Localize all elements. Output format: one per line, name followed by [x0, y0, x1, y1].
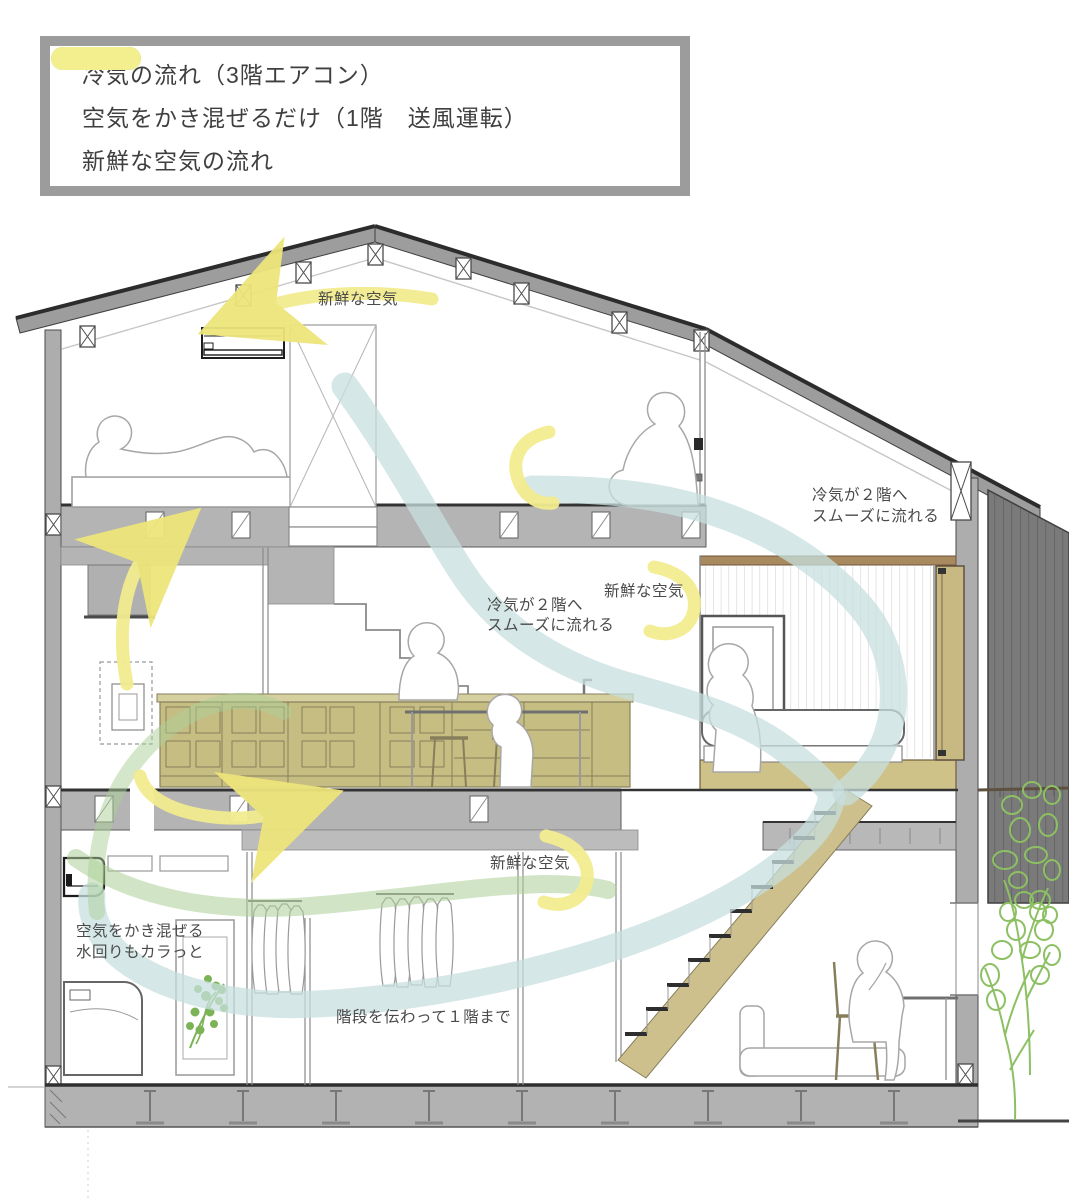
legend-item-cold: 冷気の流れ（3階エアコン）: [82, 56, 670, 90]
legend-swatch-fresh-icon: [50, 46, 142, 71]
foundation: [8, 1085, 1069, 1198]
label-via-stairs: 階段を伝わって１階まで: [336, 1008, 511, 1026]
label-mix-air-1: 空気をかき混ぜる: [76, 922, 204, 940]
diagram-stage: 新鮮な空気 冷気が２階へ スムーズに流れる 新鮮な空気 冷気が２階へ スムーズに…: [0, 0, 1069, 1200]
label-fresh-air-top: 新鮮な空気: [318, 290, 398, 308]
air-flow-section-diagram: { "legend": { "items": [ {"label": "冷気の流…: [0, 0, 1069, 1200]
bed-platform-3f: [72, 477, 322, 507]
legend-item-mix: 空気をかき混ぜるだけ（1階 送風運転）: [82, 99, 670, 133]
label-fresh-air-1f: 新鮮な空気: [490, 854, 570, 872]
transom-windows-1f: [108, 856, 228, 871]
ac-unit-3f: [202, 328, 284, 358]
wall-switch: [694, 438, 703, 450]
label-cold-to-2f-right-1: 冷気が２階へ: [812, 486, 908, 504]
legend-item-fresh: 新鮮な空気の流れ: [82, 142, 670, 176]
tree-right: [981, 892, 1060, 1120]
legend-label-mix: 空気をかき混ぜるだけ（1階 送風運転）: [82, 99, 528, 133]
washing-machine: [64, 982, 142, 1075]
fresh-air-arc-2f: [650, 567, 694, 634]
label-fresh-air-2f: 新鮮な空気: [604, 582, 684, 600]
label-cold-to-2f-left-1: 冷気が２階へ: [487, 596, 583, 614]
legend-label-fresh: 新鮮な空気の流れ: [82, 142, 274, 176]
person-standing-kitchen: [399, 623, 458, 700]
label-cold-to-2f-right-2: スムーズに流れる: [812, 507, 939, 525]
right-wall-brace: [951, 462, 971, 520]
label-cold-to-2f-left-2: スムーズに流れる: [487, 616, 614, 634]
bedroom-floor: [621, 760, 958, 850]
bedroom-door: [936, 566, 964, 760]
left-wall: [45, 330, 61, 1087]
label-mix-air-2: 水回りもカラっと: [76, 943, 204, 961]
clothes-rack-2: [376, 894, 454, 987]
person-lying-3f: [86, 416, 287, 477]
legend-box: 冷気の流れ（3階エアコン） 空気をかき混ぜるだけ（1階 送風運転） 新鮮な空気の…: [40, 36, 690, 196]
right-wall-window: [956, 903, 978, 995]
